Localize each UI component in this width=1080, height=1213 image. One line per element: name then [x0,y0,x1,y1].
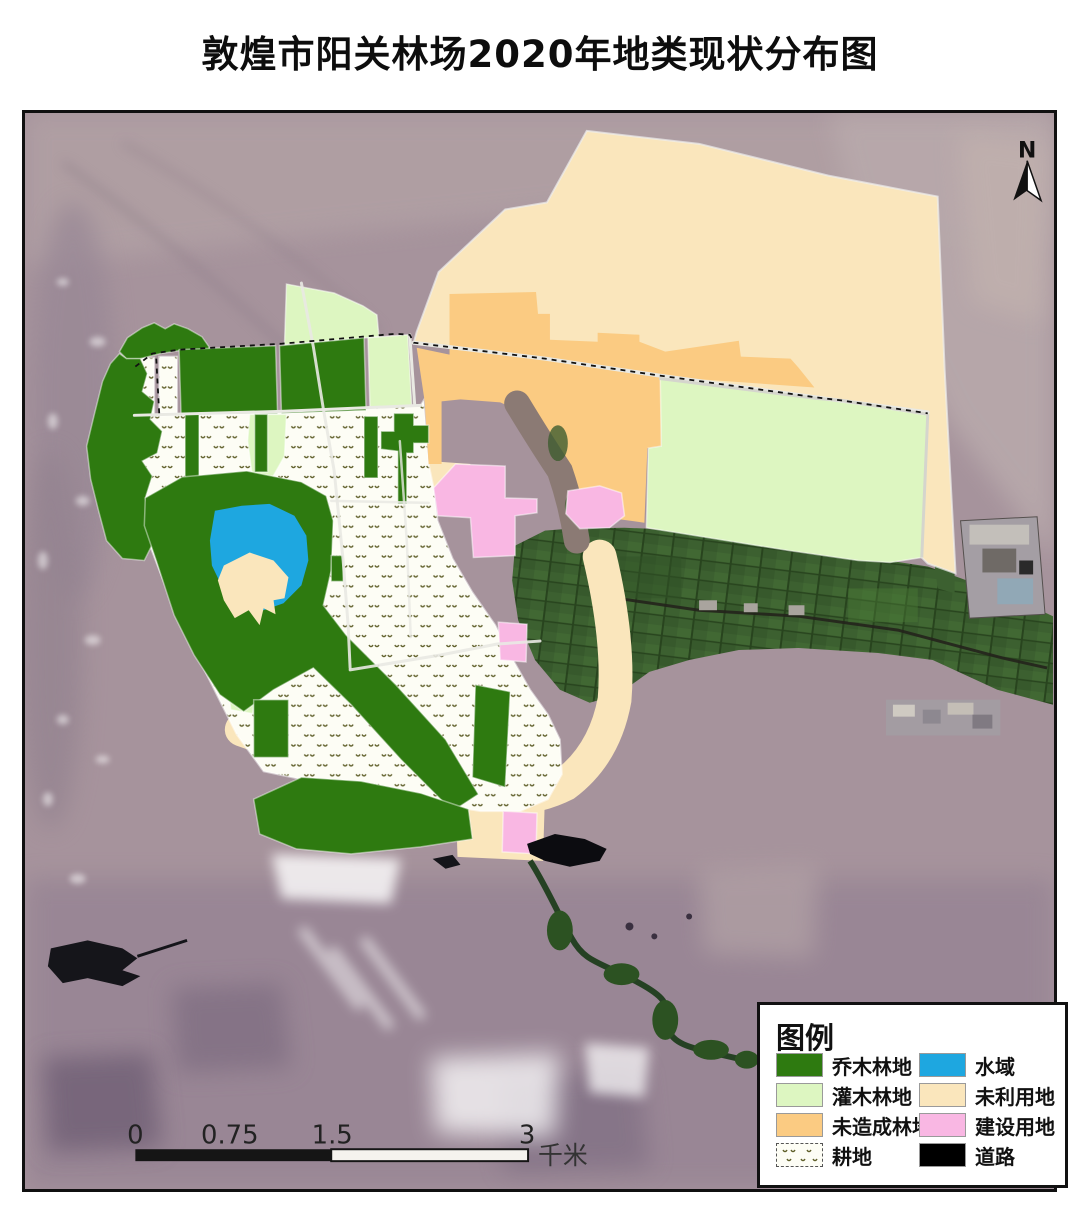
legend-swatch-unused-land [919,1083,966,1107]
legend-label: 未利用地 [975,1081,1055,1110]
scale-tick-0: 0 [127,1120,143,1150]
legend-item-shrub-land: 灌木林地 [776,1083,932,1107]
legend-label: 灌木林地 [832,1081,912,1110]
legend-item-unused-land: 未利用地 [919,1083,1055,1107]
legend-item-cultivated-land: 耕地 [776,1143,932,1167]
legend-label: 道路 [975,1141,1015,1170]
settlement-northeast [961,517,1046,618]
legend-title: 图例 [776,1015,834,1057]
settlement-south [886,700,1000,736]
legend-label: 水域 [975,1051,1015,1080]
legend-label: 未造成林地 [832,1111,932,1140]
legend-item-road: 道路 [919,1143,1055,1167]
legend-swatch-water [919,1053,966,1077]
scale-tick-3: 3 [519,1120,535,1150]
north-label: N [1018,139,1036,164]
legend-swatch-road [919,1143,966,1167]
cultivated-pattern-icon [777,1144,822,1166]
legend-swatch-not-yet-forested [776,1113,823,1137]
legend-item-construction-land: 建设用地 [919,1113,1055,1137]
scale-tick-1: 0.75 [201,1120,259,1150]
legend-swatch-construction-land [919,1113,966,1137]
legend-label: 乔木林地 [832,1051,912,1080]
legend-item-not-yet-forested: 未造成林地 [776,1113,932,1137]
legend-swatch-arbor-forest [776,1053,823,1077]
legend-item-arbor-forest: 乔木林地 [776,1053,932,1077]
scale-tick-2: 1.5 [312,1120,353,1150]
page: { "title": "敦煌市阳关林场2020年地类现状分布图", "north… [0,0,1080,1213]
legend-item-water: 水域 [919,1053,1055,1077]
legend-label: 耕地 [832,1141,872,1170]
legend-label: 建设用地 [975,1111,1055,1140]
legend-swatch-shrub-land [776,1083,823,1107]
map-title: 敦煌市阳关林场2020年地类现状分布图 [0,24,1080,78]
legend-box: 图例 乔木林地 灌木林地 未造成林地 耕地 [757,1002,1068,1188]
legend-swatch-cultivated-land [776,1143,823,1167]
scale-unit: 千米 [538,1141,588,1170]
